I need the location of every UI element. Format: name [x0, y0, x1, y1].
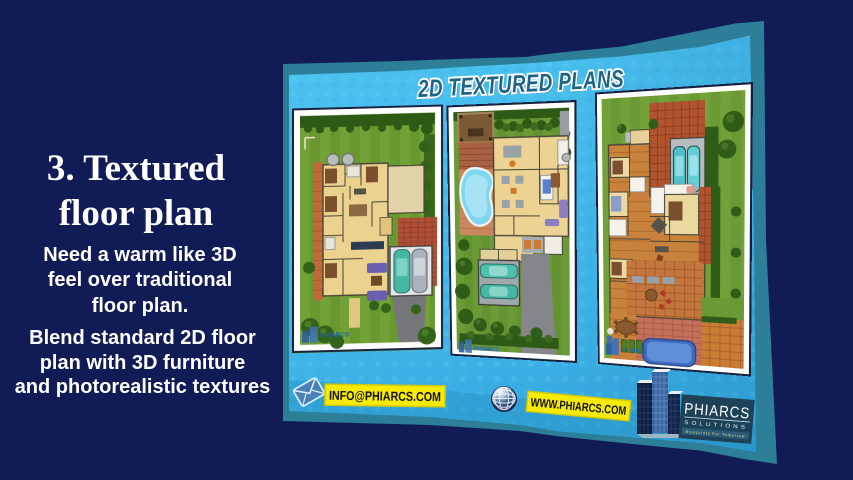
svg-text:INFO@PHIARCS.COM: INFO@PHIARCS.COM: [329, 388, 441, 405]
